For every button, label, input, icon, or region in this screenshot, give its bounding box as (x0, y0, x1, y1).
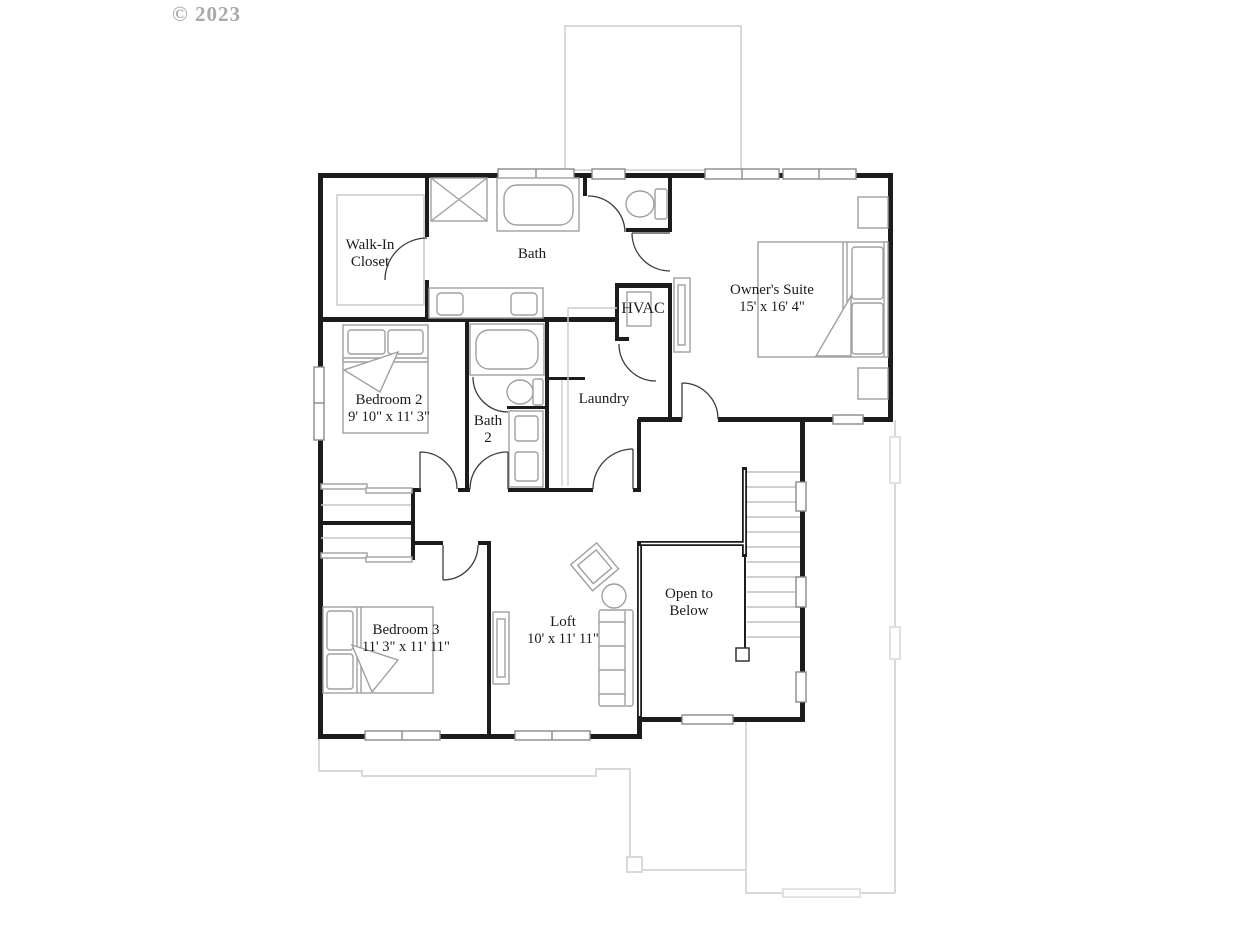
nightstand-icon (858, 197, 888, 228)
wall-hvac-top (615, 283, 672, 288)
vanity-double-sink (429, 288, 543, 318)
window (796, 577, 806, 607)
window (592, 169, 625, 179)
loft-chair-icon (571, 543, 619, 591)
door-swing-hvac (619, 344, 656, 381)
wall-bed3-loft (487, 541, 491, 739)
wall-hall-east (637, 419, 641, 490)
wall-bath2-divider (507, 406, 545, 409)
room-label-bath2: Bath 2 (474, 413, 502, 447)
room-label-laundry: Laundry (579, 391, 630, 408)
nightstand-icon (858, 368, 888, 399)
media-console-icon (493, 612, 509, 684)
wall-bed2-bath2 (465, 322, 469, 490)
wall-suite-bottom-b (718, 417, 893, 422)
room-label-bedroom2: Bedroom 2 9' 10" x 11' 3" (348, 392, 430, 426)
wall-left (318, 173, 323, 739)
window (682, 715, 733, 724)
room-label-walk-in-closet: Walk-In Closet (346, 237, 395, 271)
sliding-door-slab (674, 278, 690, 352)
wall-suite-bottom-a (638, 417, 682, 422)
first-floor-faint-outline (319, 26, 900, 897)
stair-railing (744, 557, 746, 649)
wall-closet-divider (318, 521, 415, 525)
faint-window (890, 627, 900, 659)
room-label-owners-suite: Owner's Suite 15' x 16' 4" (730, 282, 814, 316)
door-swing-bedroom2 (420, 452, 457, 489)
porch-post (627, 857, 642, 872)
window (833, 415, 863, 424)
wall-laundry-stub (548, 377, 585, 380)
roof-outline (565, 26, 741, 170)
door-swing-owners-bath (632, 233, 670, 271)
window (796, 482, 806, 511)
wall-wic-right-upper (425, 173, 429, 237)
bathtub2-icon (470, 324, 544, 375)
wall-right-suite (888, 173, 893, 422)
sofa-icon (599, 610, 633, 706)
room-label-bath: Bath (518, 246, 546, 263)
faint-window (783, 889, 860, 897)
wall-hall-north-c (508, 488, 593, 492)
wall-hall-south-a (413, 541, 443, 545)
stair-newel-post (736, 648, 749, 661)
shower-icon (431, 178, 487, 221)
room-label-open-to-below: Open to Below (665, 586, 713, 620)
wall-wc-left (583, 178, 587, 196)
wall-wc-right (668, 173, 672, 231)
faint-patio-outline (746, 722, 895, 893)
window (796, 672, 806, 702)
toilet2-icon (507, 379, 543, 405)
wall-bath2-laundry (545, 322, 549, 490)
bathtub-icon (497, 178, 579, 231)
door-swing-bath2 (470, 452, 508, 489)
wall-laundry-right (668, 283, 672, 419)
side-table-icon (602, 584, 626, 608)
door-swing-water-closet (588, 196, 625, 232)
toilet-icon (626, 189, 667, 219)
door-swing-bedroom3 (443, 545, 478, 580)
wall-wc-bottom (626, 228, 672, 232)
door-swing-laundry (593, 449, 633, 489)
stair-treads (747, 472, 800, 637)
room-label-loft: Loft 10' x 11' 11" (527, 614, 599, 648)
wall-hvac-stub (615, 337, 629, 341)
faint-porch-outline (319, 739, 630, 857)
faint-window (890, 437, 900, 483)
door-swing-owners-suite (682, 383, 718, 419)
copyright-watermark: © 2023 (172, 2, 241, 27)
vanity2-sink (509, 411, 543, 487)
wall-hall-north-b (458, 488, 470, 492)
room-label-hvac: HVAC (621, 300, 664, 317)
floor-plan-drawing (0, 0, 1240, 930)
wall-hvac-left (615, 283, 619, 340)
room-label-bedroom3: Bedroom 3 11' 3" x 11' 11" (362, 622, 450, 656)
floor-plan-page: © 2023 Walk-In Closet Bath HVAC Owner's … (0, 0, 1240, 930)
door-swing-bath2-inner (473, 377, 508, 412)
